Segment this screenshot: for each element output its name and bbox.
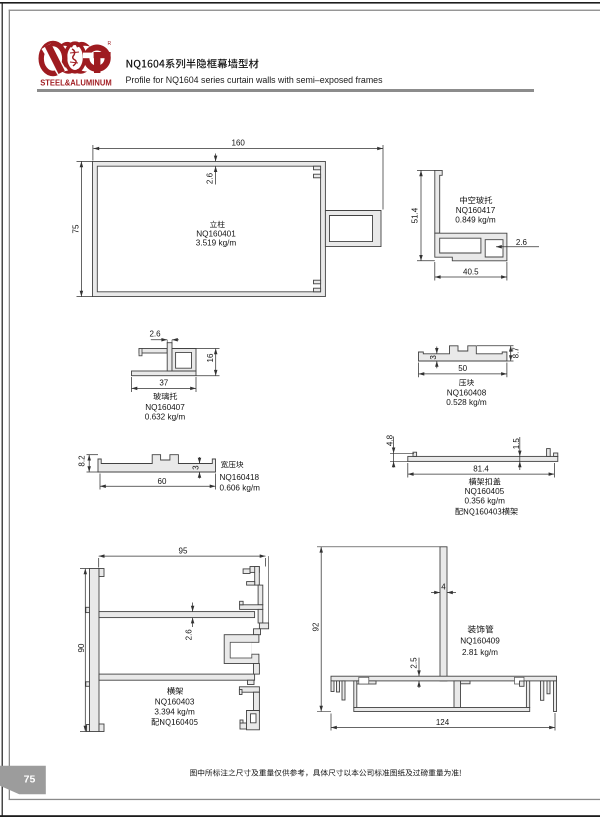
svg-text:75: 75 [71, 224, 80, 233]
svg-text:0.606 kg/m: 0.606 kg/m [220, 483, 261, 492]
svg-text:2.5: 2.5 [409, 657, 418, 669]
svg-text:R: R [108, 41, 112, 47]
svg-text:3.519 kg/m: 3.519 kg/m [196, 239, 237, 248]
svg-text:NQ160405: NQ160405 [465, 487, 505, 496]
svg-text:3: 3 [429, 355, 438, 360]
svg-text:NQ160409: NQ160409 [460, 637, 500, 646]
svg-text:16: 16 [206, 353, 215, 362]
svg-text:NQ160401: NQ160401 [196, 230, 236, 239]
svg-text:NQ160418: NQ160418 [220, 473, 260, 482]
svg-text:40.5: 40.5 [463, 267, 479, 276]
svg-text:3.394 kg/m: 3.394 kg/m [154, 707, 195, 716]
svg-text:50: 50 [458, 364, 467, 373]
svg-text:8.2: 8.2 [77, 455, 86, 467]
svg-text:2.6: 2.6 [516, 238, 528, 247]
svg-text:160: 160 [232, 139, 246, 148]
svg-text:37: 37 [159, 379, 168, 388]
svg-text:75: 75 [24, 774, 36, 786]
svg-text:0.849 kg/m: 0.849 kg/m [455, 215, 496, 224]
svg-text:4.8: 4.8 [386, 434, 395, 446]
svg-text:2.6: 2.6 [206, 172, 215, 184]
svg-text:124: 124 [436, 718, 450, 727]
svg-text:0.632 kg/m: 0.632 kg/m [145, 412, 186, 421]
svg-text:51.4: 51.4 [411, 207, 420, 223]
svg-text:0.356 kg/m: 0.356 kg/m [464, 497, 505, 506]
svg-text:8.7: 8.7 [512, 347, 521, 359]
svg-text:NQ160408: NQ160408 [447, 388, 487, 397]
svg-text:Profile for NQ1604 series curt: Profile for NQ1604 series curtain walls … [126, 75, 383, 85]
svg-text:81.4: 81.4 [473, 464, 489, 473]
svg-text:92: 92 [311, 622, 320, 631]
svg-text:95: 95 [179, 546, 188, 555]
svg-text:2.6: 2.6 [149, 330, 161, 339]
svg-text:2.81 kg/m: 2.81 kg/m [462, 648, 498, 657]
svg-text:90: 90 [77, 643, 86, 652]
svg-text:NQ160417: NQ160417 [456, 206, 496, 215]
svg-text:NQ160403: NQ160403 [155, 697, 195, 706]
svg-text:NQ160407: NQ160407 [145, 403, 185, 412]
svg-text:0.528 kg/m: 0.528 kg/m [446, 398, 487, 407]
svg-text:3: 3 [191, 465, 200, 470]
svg-text:STEEL&ALUMINUM: STEEL&ALUMINUM [40, 79, 112, 88]
svg-text:2.6: 2.6 [185, 629, 194, 641]
svg-text:60: 60 [158, 477, 167, 486]
svg-text:1.5: 1.5 [512, 438, 521, 450]
svg-text:4: 4 [441, 583, 446, 592]
